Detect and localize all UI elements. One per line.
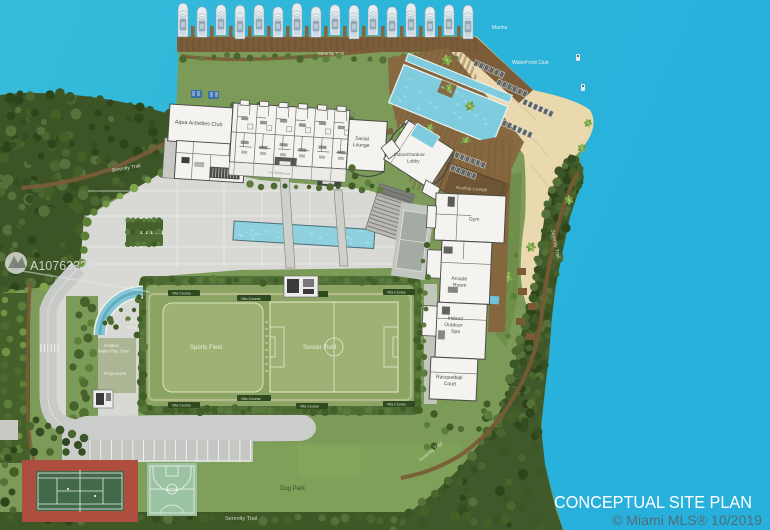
svg-text:Vita Course: Vita Course <box>241 397 261 401</box>
svg-text:Spa: Spa <box>451 329 460 335</box>
svg-text:Marina: Marina <box>492 25 508 31</box>
svg-text:Serenity Trail: Serenity Trail <box>225 516 257 522</box>
svg-text:Lounge: Lounge <box>353 142 370 149</box>
svg-text:Outdoor: Outdoor <box>444 322 463 329</box>
svg-text:Room: Room <box>453 282 467 289</box>
svg-text:Vita Course: Vita Course <box>241 297 261 301</box>
svg-text:Area: Area <box>126 325 136 331</box>
svg-text:Vita Course: Vita Course <box>387 403 406 407</box>
svg-text:Court: Court <box>444 381 457 388</box>
svg-text:Water Play Zone: Water Play Zone <box>98 349 130 354</box>
svg-text:Vita Course: Vita Course <box>387 291 406 295</box>
svg-text:BBQ: BBQ <box>127 319 137 325</box>
svg-text:Vita Course: Vita Course <box>300 405 319 409</box>
svg-text:Gym: Gym <box>469 216 480 222</box>
svg-text:Vita Course: Vita Course <box>172 404 191 408</box>
svg-text:CONCEPTUAL SITE PLAN: CONCEPTUAL SITE PLAN <box>554 492 752 512</box>
svg-text:Lobby: Lobby <box>407 159 420 164</box>
svg-text:Playcourts: Playcourts <box>104 371 127 377</box>
svg-text:Outdoor: Outdoor <box>104 343 120 348</box>
svg-text:Dog Park: Dog Park <box>280 486 306 492</box>
svg-text:Racquetball: Racquetball <box>436 374 463 381</box>
svg-text:Soccer Field: Soccer Field <box>303 345 336 351</box>
svg-text:Vita Course: Vita Course <box>172 292 191 296</box>
svg-text:WaterFront Club: WaterFront Club <box>512 60 549 66</box>
svg-text:A10763321: A10763321 <box>30 259 94 273</box>
svg-text:© Miami MLS® 10/2019: © Miami MLS® 10/2019 <box>612 513 762 528</box>
svg-text:Sports Field: Sports Field <box>190 345 222 351</box>
svg-text:Indoor/Outdoor: Indoor/Outdoor <box>394 152 425 157</box>
